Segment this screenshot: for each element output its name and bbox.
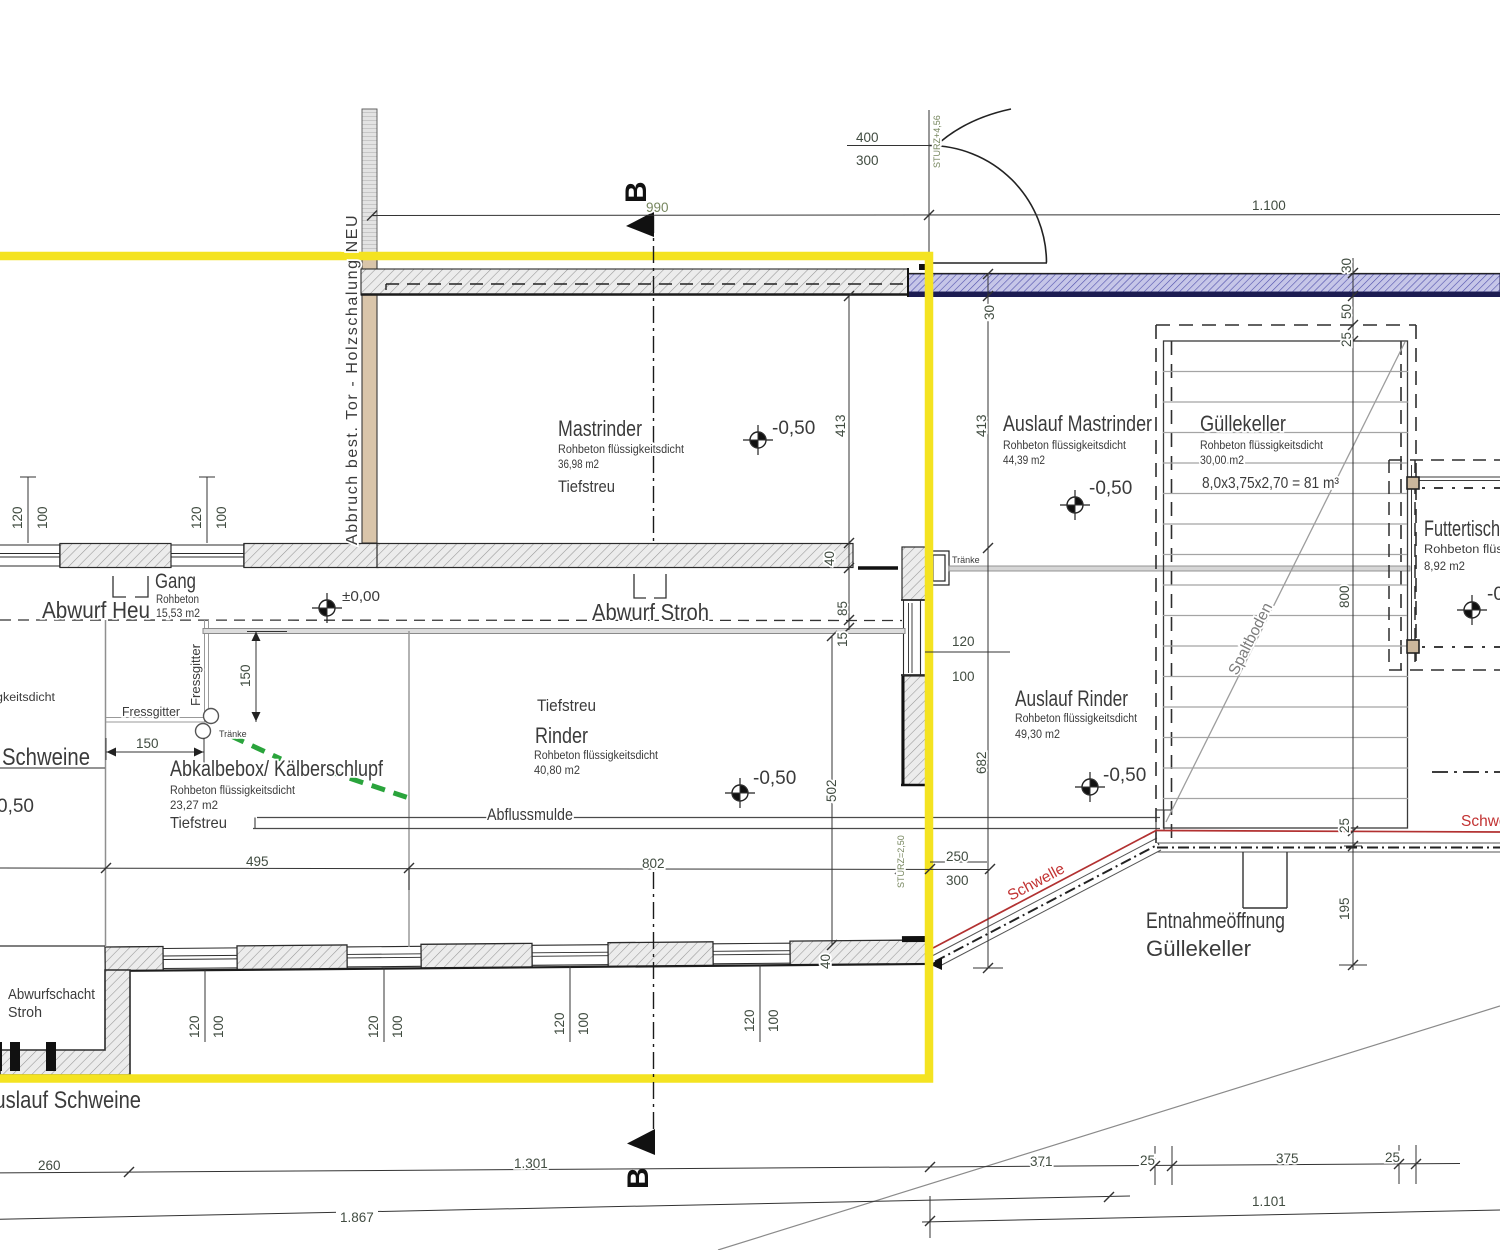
svg-text:Rohbeton flüssigkeitsdicht: Rohbeton flüssigkeitsdicht (1200, 440, 1324, 452)
svg-text:15: 15 (835, 632, 850, 647)
svg-text:120: 120 (742, 1009, 757, 1032)
svg-text:400: 400 (856, 130, 879, 145)
svg-text:8,0x3,75x2,70 = 81 m³: 8,0x3,75x2,70 = 81 m³ (1202, 475, 1339, 492)
svg-text:Tränke: Tränke (952, 555, 980, 565)
svg-text:120: 120 (10, 506, 25, 529)
svg-text:-0,50: -0,50 (753, 768, 796, 789)
svg-text:Abkalbebox/ Kälberschlupf: Abkalbebox/ Kälberschlupf (170, 756, 384, 781)
svg-text:Tiefstreu: Tiefstreu (558, 477, 615, 496)
svg-text:Rohbeton flüssigkeitsdicht: Rohbeton flüssigkeitsdicht (534, 750, 659, 762)
svg-text:Rohbeton flüssigkeitsdicht: Rohbeton flüssigkeitsdicht (1015, 713, 1138, 725)
svg-text:-0,50: -0,50 (1103, 765, 1146, 786)
svg-text:40,80 m2: 40,80 m2 (534, 765, 580, 777)
svg-text:40: 40 (818, 954, 833, 969)
svg-text:25: 25 (1385, 1150, 1400, 1165)
svg-text:Fressgitter: Fressgitter (189, 644, 203, 706)
svg-text:371: 371 (1030, 1154, 1053, 1169)
svg-text:Abwurfschacht: Abwurfschacht (8, 986, 96, 1003)
svg-text:100: 100 (952, 669, 975, 684)
svg-text:413: 413 (974, 414, 989, 437)
svg-text:495: 495 (246, 854, 269, 869)
svg-text:Auslauf Rinder: Auslauf Rinder (1015, 686, 1128, 711)
svg-text:Abwurf Stroh: Abwurf Stroh (592, 599, 709, 625)
svg-text:30: 30 (982, 305, 997, 320)
svg-text:Rohbeton flüssigkeitsdicht: Rohbeton flüssigkeitsdicht (1003, 440, 1127, 452)
svg-text:STURZ+4,56: STURZ+4,56 (932, 115, 942, 168)
svg-text:682: 682 (974, 751, 989, 774)
svg-text:Schweine: Schweine (2, 744, 90, 771)
svg-text:250: 250 (946, 849, 969, 864)
svg-text:25: 25 (1337, 818, 1352, 833)
svg-text:Rohbeton flüssigkeitsdicht: Rohbeton flüssigkeitsdicht (170, 785, 296, 797)
svg-text:Rohbeton: Rohbeton (156, 594, 199, 606)
svg-text:Güllekeller: Güllekeller (1146, 936, 1251, 961)
svg-text:120: 120 (952, 634, 975, 649)
svg-text:B: B (622, 1167, 655, 1189)
svg-text:100: 100 (35, 506, 50, 529)
svg-text:Abbruch best. Tor - Holzschalu: Abbruch best. Tor - Holzschalung NEU (344, 214, 361, 545)
svg-text:Auslauf Schweine: Auslauf Schweine (0, 1087, 141, 1114)
svg-text:100: 100 (211, 1015, 226, 1038)
svg-text:85: 85 (835, 601, 850, 616)
svg-text:100: 100 (214, 506, 229, 529)
svg-text:120: 120 (366, 1015, 381, 1038)
svg-text:Entnahmeöffnung: Entnahmeöffnung (1146, 908, 1285, 933)
svg-text:1.301: 1.301 (514, 1156, 548, 1171)
svg-text:36,98 m2: 36,98 m2 (558, 459, 599, 471)
svg-text:0,50: 0,50 (0, 796, 34, 817)
svg-text:-0,50: -0,50 (772, 418, 815, 439)
svg-text:25: 25 (1140, 1153, 1155, 1168)
svg-text:100: 100 (576, 1012, 591, 1035)
svg-text:Futtertisch: Futtertisch (1424, 516, 1500, 541)
svg-text:Gang: Gang (155, 570, 196, 593)
svg-text:25: 25 (1339, 332, 1354, 347)
svg-text:375: 375 (1276, 1151, 1299, 1166)
svg-text:1.100: 1.100 (1252, 198, 1286, 213)
svg-text:8,92 m2: 8,92 m2 (1424, 561, 1465, 573)
svg-text:100: 100 (390, 1015, 405, 1038)
svg-text:Rinder: Rinder (535, 723, 588, 748)
svg-text:50: 50 (1339, 304, 1354, 319)
svg-text:Tränke: Tränke (219, 729, 247, 739)
svg-text:-0,: -0, (1487, 584, 1500, 605)
svg-text:1.867: 1.867 (340, 1210, 374, 1225)
svg-text:23,27 m2: 23,27 m2 (170, 800, 218, 812)
svg-text:Auslauf Mastrinder: Auslauf Mastrinder (1003, 411, 1152, 436)
svg-text:-0,50: -0,50 (1089, 478, 1132, 499)
svg-text:195: 195 (1337, 897, 1352, 920)
svg-text:Schwelle: Schwelle (1461, 813, 1500, 830)
svg-text:40: 40 (822, 551, 837, 566)
svg-text:15,53 m2: 15,53 m2 (156, 608, 200, 620)
svg-text:Fressgitter: Fressgitter (122, 705, 180, 719)
svg-text:30,00 m2: 30,00 m2 (1200, 455, 1244, 467)
svg-text:150: 150 (136, 736, 159, 751)
svg-text:Tiefstreu: Tiefstreu (537, 696, 596, 715)
svg-text:30: 30 (1339, 258, 1354, 273)
svg-text:Tiefstreu: Tiefstreu (170, 815, 227, 832)
svg-text:49,30 m2: 49,30 m2 (1015, 729, 1060, 741)
svg-text:100: 100 (766, 1009, 781, 1032)
svg-text:Stroh: Stroh (8, 1004, 42, 1021)
svg-text:120: 120 (552, 1012, 567, 1035)
svg-text:802: 802 (642, 856, 665, 871)
svg-text:300: 300 (946, 873, 969, 888)
svg-text:502: 502 (824, 779, 839, 802)
svg-text:Rohbeton flüssig: Rohbeton flüssig (1424, 544, 1500, 556)
svg-text:120: 120 (187, 1015, 202, 1038)
svg-text:990: 990 (646, 200, 669, 215)
svg-text:Abflussmulde: Abflussmulde (487, 805, 573, 824)
svg-text:300: 300 (856, 153, 879, 168)
svg-text:Mastrinder: Mastrinder (558, 416, 642, 441)
svg-text:800: 800 (1337, 585, 1352, 608)
svg-text:1.101: 1.101 (1252, 1194, 1286, 1209)
svg-text:Rohbeton flüssigkeitsdicht: Rohbeton flüssigkeitsdicht (558, 444, 685, 456)
svg-text:sigkeitsdicht: sigkeitsdicht (0, 692, 56, 704)
svg-text:120: 120 (189, 506, 204, 529)
svg-text:±0,00: ±0,00 (342, 588, 380, 605)
svg-text:150: 150 (238, 664, 253, 687)
svg-text:413: 413 (833, 414, 848, 437)
svg-text:STURZ=2,50: STURZ=2,50 (896, 835, 906, 888)
svg-text:260: 260 (38, 1158, 61, 1173)
svg-text:44,39 m2: 44,39 m2 (1003, 455, 1045, 467)
svg-text:Spaltboden: Spaltboden (1225, 600, 1276, 678)
svg-text:Abwurf Heu: Abwurf Heu (42, 597, 150, 623)
svg-text:Güllekeller: Güllekeller (1200, 411, 1286, 436)
